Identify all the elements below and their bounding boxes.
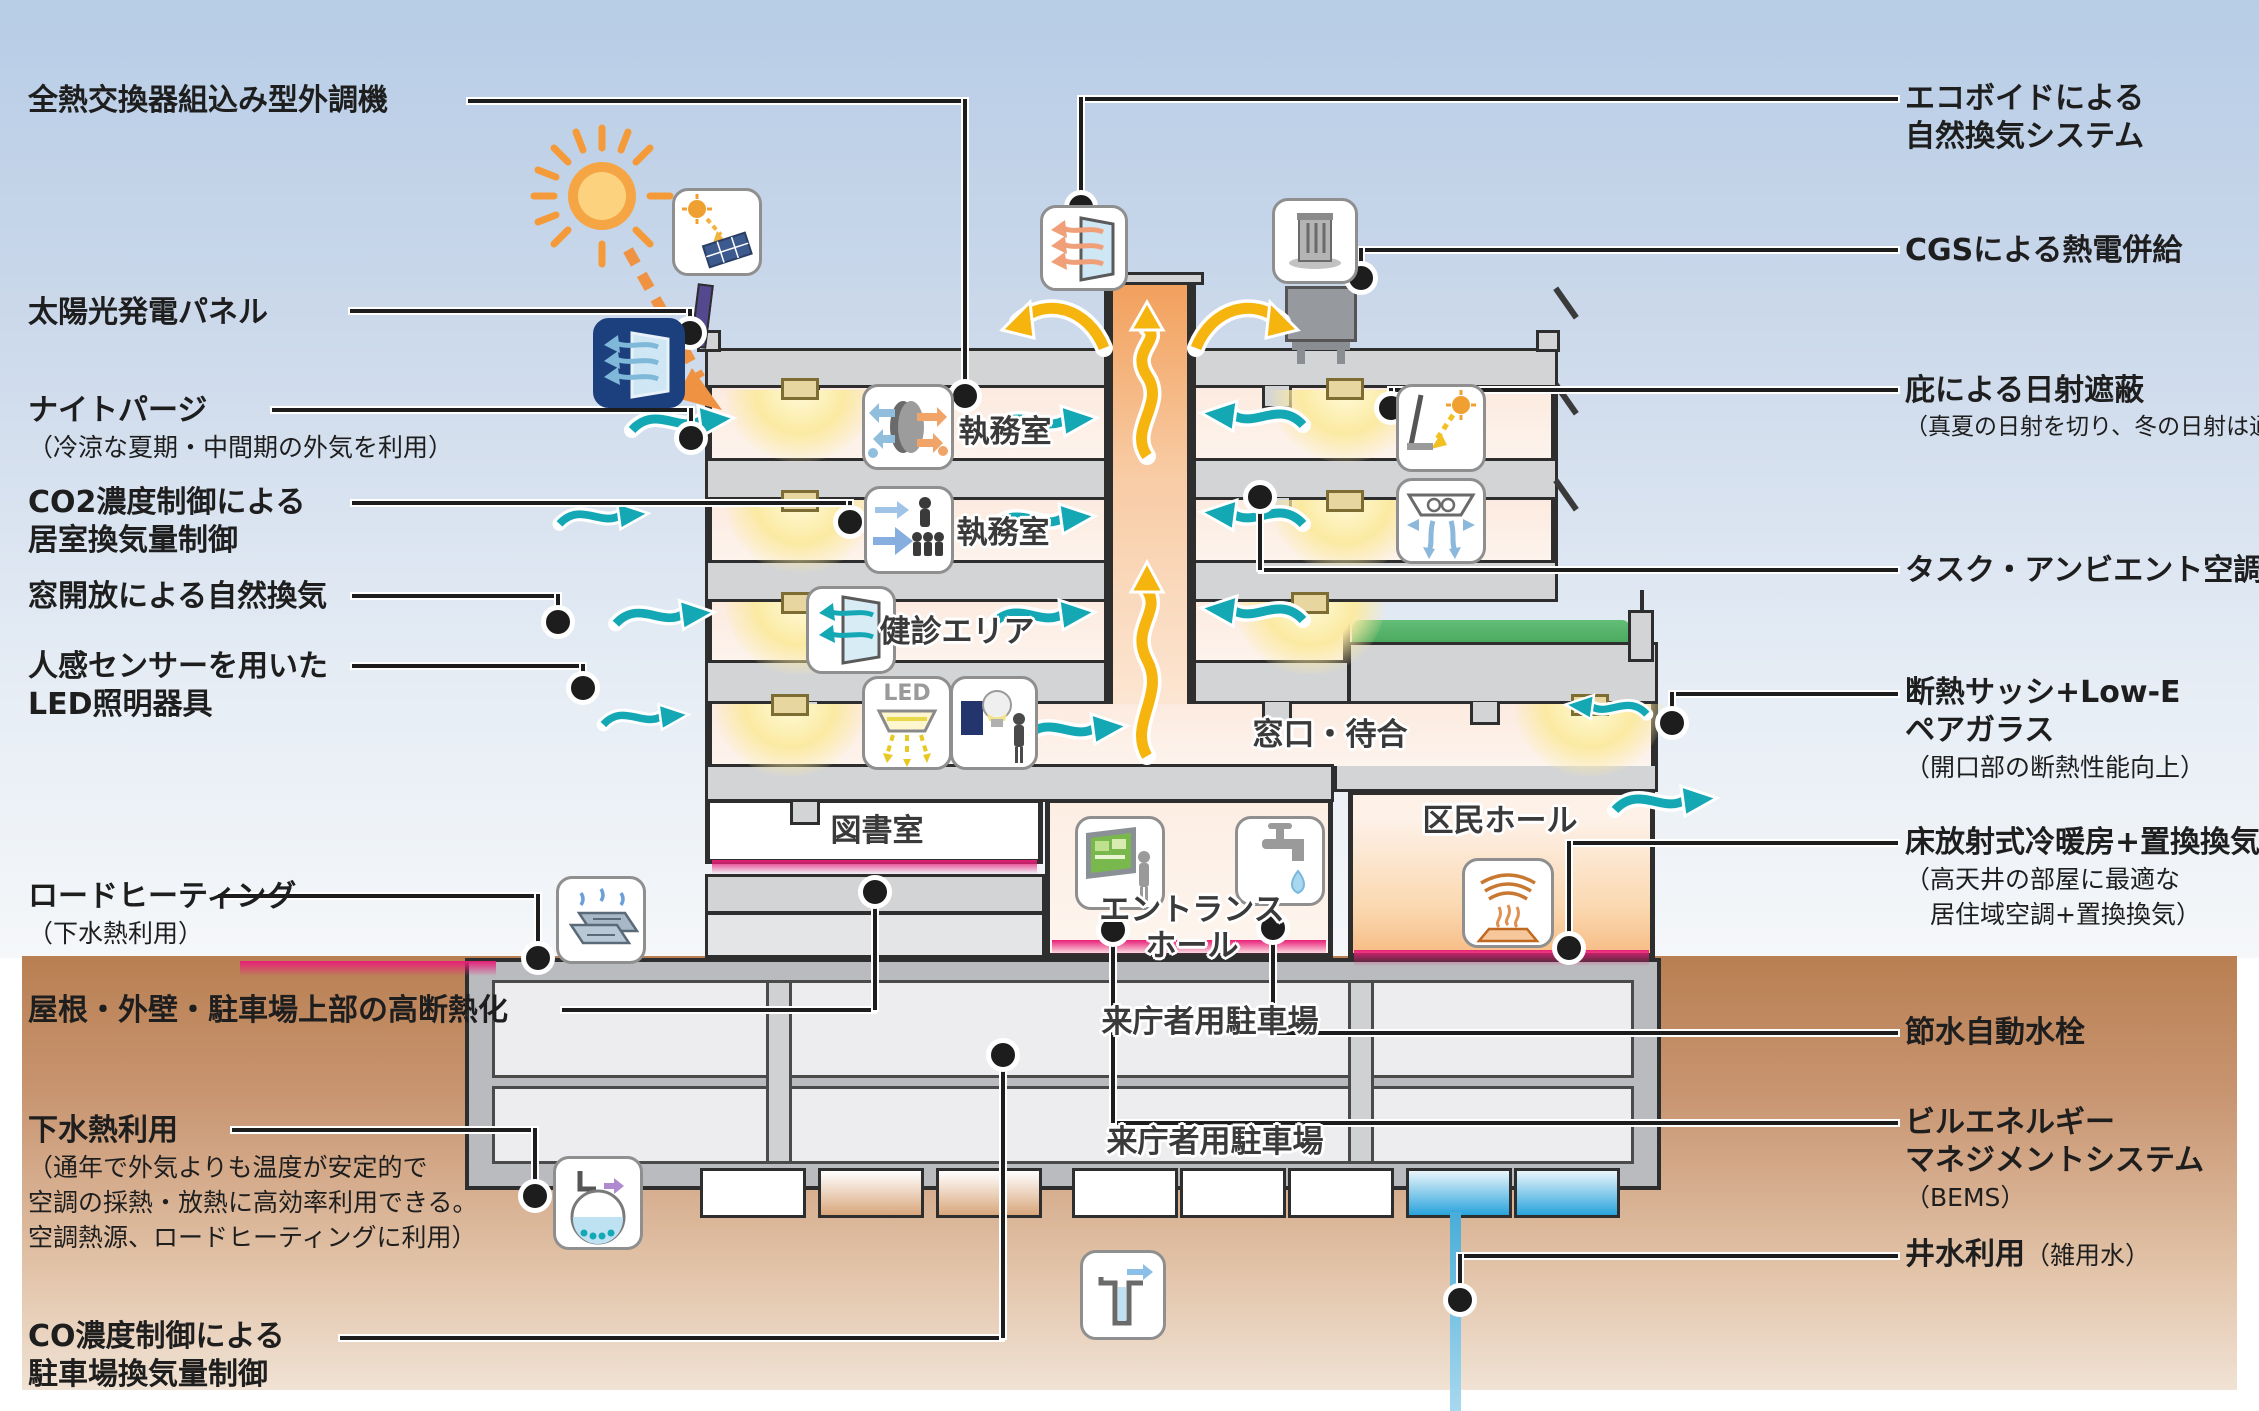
air-flow-arrow [1196, 393, 1308, 439]
beam-notch [1470, 702, 1500, 725]
leader-dot [518, 1179, 552, 1213]
pit-box [1072, 1168, 1178, 1218]
leader-line [1460, 1254, 1898, 1258]
floor-radiant-icon [1462, 858, 1554, 948]
leader-line [340, 1336, 1003, 1340]
leader-line [1079, 97, 1898, 101]
label-subtext: （下水熱利用） [28, 916, 296, 951]
label-subtext: （高天井の部屋に最適な [1905, 862, 2259, 897]
cgs-machine-stand [1292, 342, 1350, 350]
label-sun-shade: 庇による日射遮蔽 （真夏の日射を切り、冬の日射は通す） [1905, 372, 2259, 445]
label-night-purge: ナイトパージ （冷涼な夏期・中間期の外気を利用） [28, 392, 453, 465]
room-label-parking-b1: 来庁者用駐車場 [1102, 1004, 1319, 1040]
leader-dot [858, 875, 892, 909]
pit-box [1288, 1168, 1394, 1218]
label-subtext: （冷涼な夏期・中間期の外気を利用） [28, 430, 453, 465]
label-text: 人感センサーを用いた [28, 648, 328, 686]
pit-box [936, 1168, 1042, 1218]
leader-line [352, 594, 558, 598]
room-label-hall: 区民ホール [1423, 803, 1578, 839]
label-subtext: （開口部の断熱性能向上） [1905, 750, 2205, 785]
terrace-parapet [1628, 610, 1654, 662]
label-heat-exchanger-oa: 全熱交換器組込み型外調機 [28, 82, 388, 120]
exhaust-up-arrow [1124, 556, 1170, 761]
label-ecovoid: エコボイドによる 自然換気システム [1905, 80, 2144, 156]
leader-dot [1655, 706, 1689, 740]
label-text: タスク・アンビエント空調 [1905, 553, 2259, 588]
leader-line [963, 99, 967, 395]
label-task-ambient: タスク・アンビエント空調 [1905, 552, 2259, 590]
task-ambient-icon [1396, 478, 1486, 564]
leader-line [468, 99, 965, 103]
label-text: 断熱サッシ+Low-E [1905, 674, 2205, 712]
room-label-office5: 執務室 [959, 414, 1052, 450]
air-flow-arrow [1196, 588, 1308, 634]
leader-dot [986, 1038, 1020, 1072]
label-text: 井水利用 [1905, 1237, 2025, 1272]
room-label-parking-b2: 来庁者用駐車場 [1107, 1124, 1324, 1160]
label-text: エコボイドによる [1905, 80, 2144, 118]
leader-line [352, 501, 850, 505]
label-text: 床放射式冷暖房+置換換気 [1905, 824, 2259, 862]
label-text: ビルエネルギー [1905, 1104, 2204, 1142]
leader-line [352, 664, 583, 668]
well-icon [1080, 1250, 1166, 1340]
well-water-tank [1514, 1168, 1620, 1218]
led-icon-label: LED [865, 681, 949, 706]
parking-b1-room [492, 980, 1634, 1078]
entrance-label-line1: エントランス [1099, 892, 1284, 928]
label-text: 屋根・外壁・駐車場上部の高断熱化 [28, 993, 508, 1028]
label-lowe-glass: 断熱サッシ+Low-E ペアガラス （開口部の断熱性能向上） [1905, 674, 2205, 785]
label-text: マネジメントシステム [1905, 1142, 2204, 1180]
label-subtext: （通年で外気よりも温度が安定的で [28, 1150, 478, 1185]
room-label-service: 窓口・待合 [1253, 717, 1408, 753]
entrance-label-line2: ホール [1099, 928, 1284, 964]
night-purge-icon [593, 318, 685, 408]
label-text: 窓開放による自然換気 [28, 579, 327, 614]
light-fixture [1326, 490, 1364, 512]
sun-shade-icon [1396, 384, 1486, 472]
label-text: ロードヒーティング [28, 878, 296, 916]
label-subtext: 空調の採熱・放熱に高効率利用できる。 [28, 1185, 478, 1220]
leader-line [1001, 1055, 1005, 1338]
pit-box [700, 1168, 806, 1218]
exhaust-up-arrow [1124, 300, 1170, 460]
label-subtext: （真夏の日射を切り、冬の日射は通す） [1905, 410, 2259, 445]
label-text: 全熱交換器組込み型外調機 [28, 83, 388, 118]
beam-notch [790, 802, 820, 825]
basement-column [1348, 980, 1374, 1164]
leader-line [1569, 841, 1898, 845]
label-text: 下水熱利用 [28, 1112, 478, 1150]
label-motion-sensor-led: 人感センサーを用いた LED照明器具 [28, 648, 328, 724]
road-heating-icon [556, 876, 646, 964]
leader-dot [674, 421, 708, 455]
light-fixture [781, 378, 819, 400]
air-flow-arrow [1608, 778, 1724, 824]
label-text: CO2濃度制御による [28, 484, 306, 522]
motion-sensor-icon [950, 676, 1038, 770]
label-text: ペアガラス [1905, 712, 2205, 750]
room-label-checkup: 健診エリア [880, 614, 1035, 650]
exhaust-out-arrow-left [1000, 286, 1112, 354]
label-solar-panel: 太陽光発電パネル [28, 294, 268, 332]
label-text: ナイトパージ [28, 392, 453, 430]
leader-line [1672, 692, 1898, 696]
label-text: 庇による日射遮蔽 [1905, 372, 2259, 410]
leader-dot [833, 505, 867, 539]
leader-line [1260, 568, 1898, 572]
roof-parapet [1536, 330, 1560, 352]
label-text: 太陽光発電パネル [28, 295, 268, 330]
room-label-entrance: エントランス ホール [1099, 892, 1284, 964]
leader-dot [521, 941, 555, 975]
air-flow-arrow [612, 592, 718, 638]
cgs-icon [1272, 198, 1358, 284]
label-cgs: CGSによる熱電併給 [1905, 232, 2182, 270]
leader-line [350, 309, 690, 313]
label-text: 駐車場換気量制御 [28, 1356, 285, 1394]
pit-box [1180, 1168, 1286, 1218]
label-road-heating: ロードヒーティング （下水熱利用） [28, 878, 296, 951]
leader-line [562, 1008, 875, 1012]
building-section-diagram: LED [0, 0, 2259, 1411]
label-text: 節水自動水栓 [1905, 1015, 2085, 1050]
pit-box [818, 1168, 924, 1218]
label-bems: ビルエネルギー マネジメントシステム （BEMS） [1905, 1104, 2204, 1215]
room-label-office4: 執務室 [957, 515, 1050, 551]
label-text: 自然換気システム [1905, 118, 2144, 156]
label-subtext: 居住域空調+置換換気） [1905, 897, 2259, 932]
label-window-ventilation: 窓開放による自然換気 [28, 578, 327, 616]
room-label-library: 図書室 [831, 813, 924, 849]
label-floor-radiant: 床放射式冷暖房+置換換気 （高天井の部屋に最適な 居住域空調+置換換気） [1905, 824, 2259, 932]
label-subtext: （雑用水） [2025, 1241, 2150, 1270]
air-flow-arrow [1562, 686, 1650, 728]
terrace-mast [1640, 590, 1644, 612]
label-insulation: 屋根・外壁・駐車場上部の高断熱化 [28, 992, 508, 1030]
exhaust-out-arrow-right [1188, 286, 1300, 354]
leader-dot [1443, 1283, 1477, 1317]
led-icon: LED [862, 676, 952, 770]
parking-b2-room [492, 1086, 1634, 1164]
label-subtext: （BEMS） [1905, 1180, 2204, 1215]
leader-line [1273, 1031, 1898, 1035]
leader-dot [1243, 480, 1277, 514]
sewage-heat-icon [553, 1156, 643, 1250]
library-floor-heating [712, 860, 1037, 874]
cgs-machine-leg [1337, 350, 1345, 364]
leader-line [1361, 248, 1898, 252]
heat-exchanger-icon [862, 384, 954, 470]
label-co2-control: CO2濃度制御による 居室換気量制御 [28, 484, 306, 560]
well-water-tank [1406, 1168, 1512, 1218]
label-subtext: 空調熱源、ロードヒーティングに利用） [28, 1220, 478, 1255]
label-well-water: 井水利用（雑用水） [1905, 1236, 2150, 1274]
label-co-control-parking: CO濃度制御による 駐車場換気量制御 [28, 1318, 285, 1394]
light-fixture [771, 694, 809, 716]
leader-line [1079, 97, 1083, 205]
solar-panel-icon [672, 188, 762, 276]
label-text: LED照明器具 [28, 686, 328, 724]
leader-dot [1552, 931, 1586, 965]
leader-line [873, 892, 877, 1010]
label-sewage-heat: 下水熱利用 （通年で外気よりも温度が安定的で 空調の採熱・放熱に高効率利用できる… [28, 1112, 478, 1255]
label-water-saving: 節水自動水栓 [1905, 1014, 2085, 1052]
co2-control-icon [864, 486, 954, 574]
leader-dot [541, 605, 575, 639]
light-fixture [1326, 378, 1364, 400]
road-heating-strip [240, 961, 496, 976]
label-text: CO濃度制御による [28, 1318, 285, 1356]
leader-dot [566, 671, 600, 705]
hall-floor-heating [1354, 950, 1649, 966]
label-text: CGSによる熱電併給 [1905, 233, 2182, 268]
label-text: 居室換気量制御 [28, 522, 306, 560]
air-flow-arrow [600, 696, 692, 738]
ecovoid-window-icon [1040, 205, 1128, 291]
